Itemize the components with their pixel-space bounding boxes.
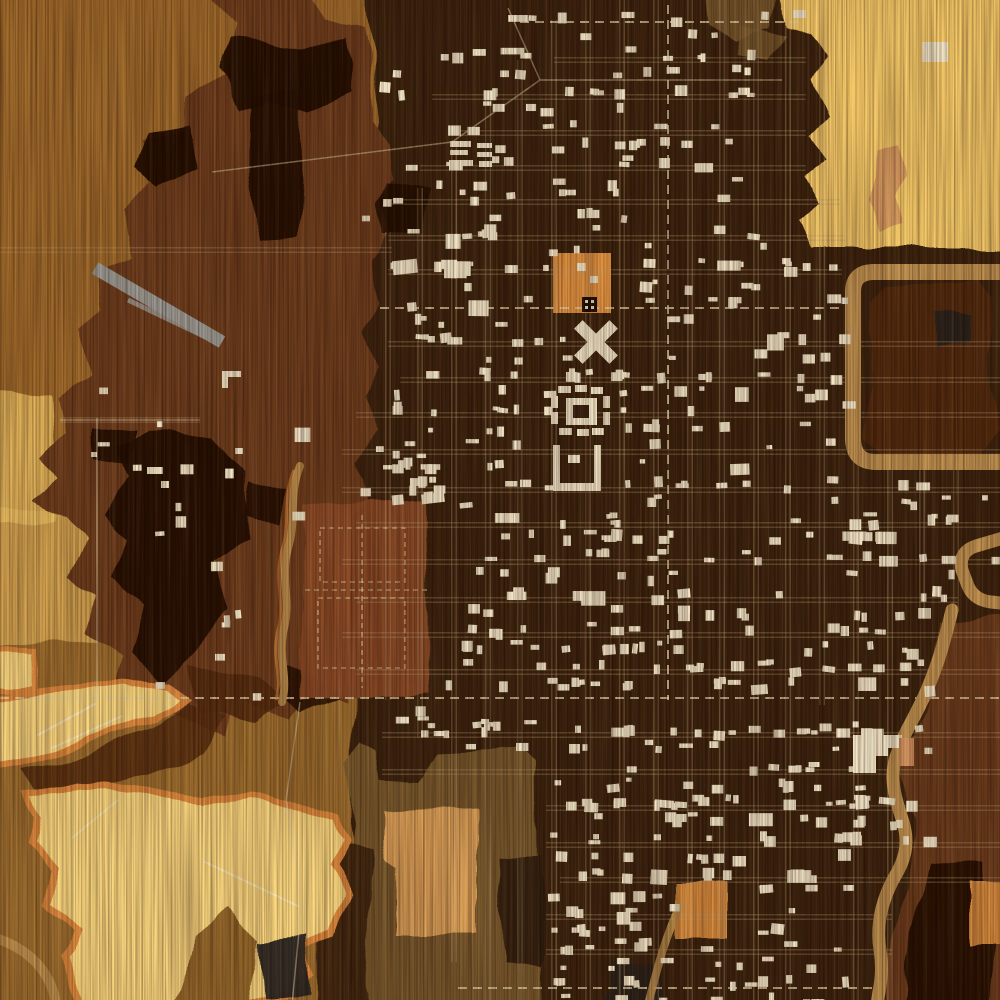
map-viewport[interactable] — [0, 0, 1000, 1000]
map-canvas[interactable] — [0, 0, 1000, 1000]
wood-texture-overlay — [0, 0, 1000, 1000]
